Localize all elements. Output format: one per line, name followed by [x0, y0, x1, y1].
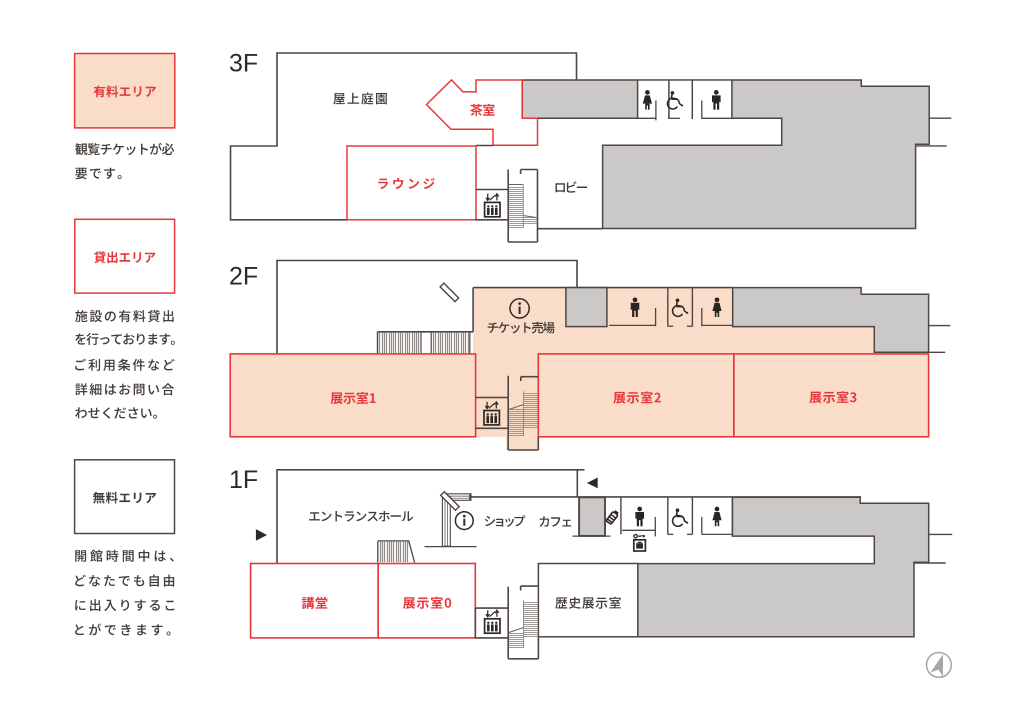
svg-text:1F: 1F: [229, 466, 258, 494]
svg-text:2F: 2F: [229, 263, 258, 291]
svg-text:3F: 3F: [229, 50, 258, 78]
